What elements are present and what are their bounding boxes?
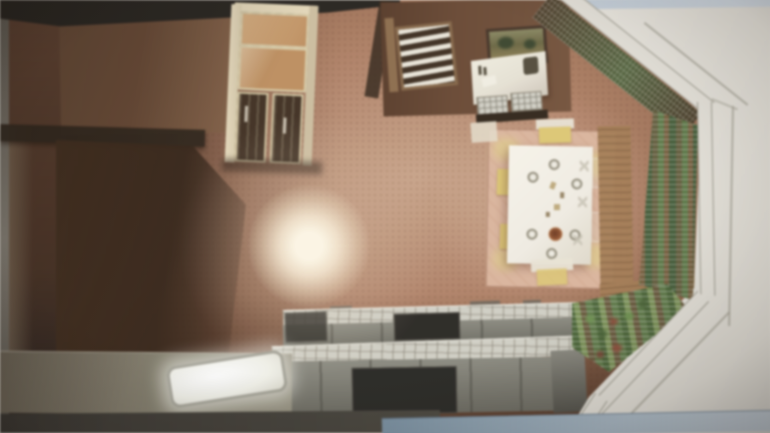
- wine-glass: [580, 161, 589, 172]
- window-seat-vertical: [598, 126, 634, 292]
- floor-stool: [470, 121, 497, 143]
- blurred-scene: [0, 0, 770, 433]
- chair-seat-top: [539, 126, 572, 143]
- planter-flowers: [596, 351, 604, 358]
- buffet-drawer-right: [510, 91, 542, 112]
- buffet-papers: [481, 75, 496, 87]
- planter-foliage: [638, 300, 647, 308]
- plate: [549, 159, 560, 170]
- bottom-dark-strip: [0, 410, 440, 433]
- planter-foliage: [598, 330, 607, 338]
- plate: [526, 229, 537, 240]
- planter-flowers: [612, 344, 622, 352]
- planter-foliage: [624, 312, 634, 320]
- buffet-bottle: [483, 67, 486, 75]
- buffet-appliance: [523, 56, 539, 75]
- blinds-window: [395, 21, 458, 91]
- glass-glint: [244, 106, 248, 122]
- centerpiece-dish: [548, 227, 562, 241]
- hutch-glass-middle: [238, 46, 308, 93]
- chair-seat-bottom: [537, 268, 568, 286]
- planter-flowers: [610, 318, 618, 325]
- table-item: [546, 212, 550, 217]
- planter-foliage: [585, 315, 595, 323]
- painting-tree: [524, 39, 537, 50]
- dining-table: [507, 145, 593, 264]
- hutch-glass-upper: [240, 12, 309, 49]
- counter-end-cap: [550, 349, 587, 413]
- painting-tree: [497, 36, 514, 49]
- plate: [546, 248, 557, 259]
- lens-glare: [248, 185, 370, 307]
- island-open-bay: [352, 366, 458, 415]
- photo-of-screen: [0, 0, 770, 433]
- plate: [571, 178, 582, 189]
- table-item: [554, 204, 560, 210]
- table-item: [560, 192, 564, 198]
- plate: [527, 172, 538, 183]
- table-item: [549, 181, 556, 189]
- wine-glass: [578, 196, 587, 207]
- wine-glass: [573, 234, 582, 245]
- buffet-bottle: [478, 66, 482, 75]
